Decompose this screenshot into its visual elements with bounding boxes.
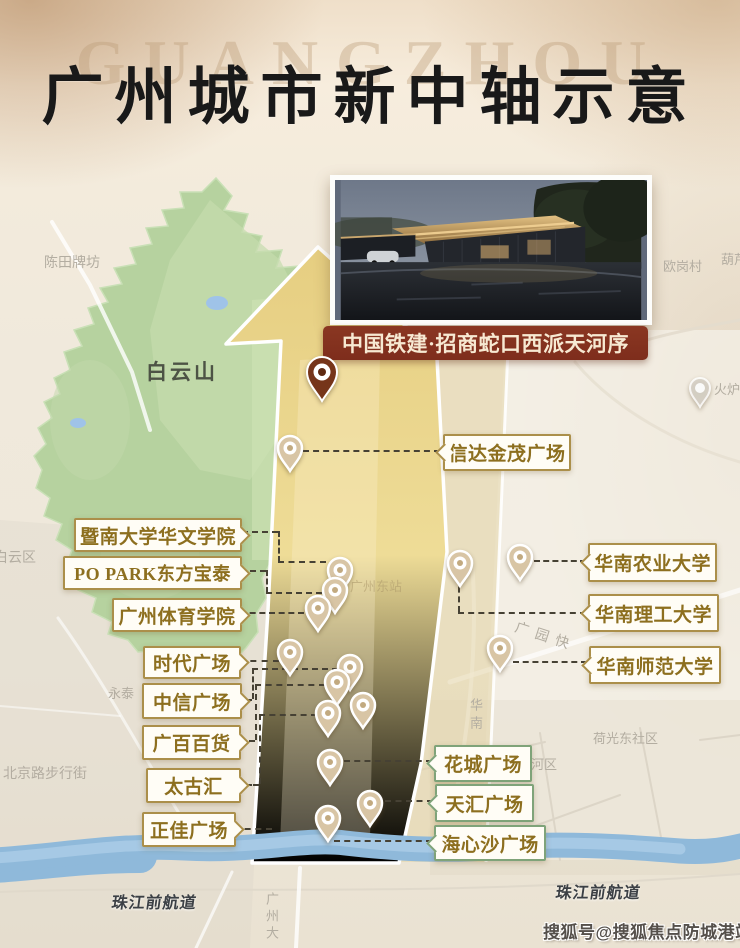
map-pin-tan [315,748,345,793]
area-label: 白云区 [0,547,36,567]
connector-segment [385,800,433,802]
sohu-watermark: 搜狐号@搜狐焦点防城港站 [543,918,740,943]
callout-notch [231,776,249,794]
map-pin-tan [313,699,343,744]
map-callout: 中信广场 [142,683,242,719]
callout-notch [226,820,244,838]
map-callout: 广州体育学院 [112,598,242,632]
connector-segment [259,714,261,784]
callout-text: 信达金茂广场 [448,439,565,466]
map-callout: 海心沙广场 [434,825,546,861]
connector-segment [278,561,326,563]
callout-text: 花城广场 [444,750,522,777]
map-callout: 时代广场 [143,646,241,679]
project-location-pin [303,354,341,409]
map-pin-tan [348,691,378,736]
map-callout: 天汇广场 [435,784,534,822]
project-photo-illustration [335,180,647,320]
callout-text: 广百百货 [152,729,230,756]
connector-segment [266,570,268,593]
connector-segment [278,531,280,562]
page-title: 广州城市新中轴示意 [0,46,740,136]
callout-text: PO PARK东方宝泰 [74,560,231,586]
connector-segment [458,612,586,614]
map-pin-tan [505,543,535,588]
area-label: 葫芦 [721,249,740,268]
callout-text: 华南师范大学 [596,652,713,679]
map-pin-gray [688,377,712,414]
area-label: 陈田牌坊 [44,252,100,272]
callout-notch [232,692,250,710]
guangzhou-axis-map-poster: 陈田牌坊欧岗村葫芦白云山白云区永泰北京路步行街广州东站广园快华南荷光东社区河区火… [0,0,740,948]
area-label: 广州大 [262,892,281,943]
project-name-banner: 中国铁建·招商蛇口西派天河序 [323,326,648,360]
connector-segment [255,684,257,740]
connector-segment [303,450,440,452]
map-callout: 华南师范大学 [589,646,721,684]
connector-segment [259,714,317,716]
map-callout: 太古汇 [146,768,241,803]
map-pin-tan [313,804,343,849]
map-pin-tan [303,594,333,639]
map-callout: 广百百货 [142,725,241,760]
map-callout: 暨南大学华文学院 [74,518,242,552]
map-callout: 信达金茂广场 [443,434,571,471]
callout-notch [427,794,445,812]
map-pin-tan [275,434,305,479]
connector-segment [534,560,586,562]
river-name-label: 珠江前航道 [110,889,198,913]
area-label: 欧岗村 [663,256,702,275]
map-pin-tan [485,634,515,679]
callout-text: 华南理工大学 [595,600,712,627]
area-label: 荷光东社区 [593,728,658,747]
callout-notch [231,733,249,751]
project-photo [330,175,652,325]
area-label: 华南 [466,698,485,734]
river-name-label: 珠江前航道 [554,879,642,903]
area-label: 永泰 [108,683,134,702]
area-label: 白云山 [146,356,218,386]
connector-segment [344,760,432,762]
callout-text: 正佳广场 [150,816,228,843]
map-callout: 正佳广场 [142,812,236,847]
callout-text: 海心沙广场 [441,830,539,857]
connector-segment [334,840,432,842]
callout-text: 华南农业大学 [594,549,711,576]
area-label: 北京路步行街 [3,763,87,783]
map-pin-tan [445,549,475,594]
area-label: 广州东站 [350,576,402,595]
callout-text: 广州体育学院 [118,602,235,629]
map-callout: 华南农业大学 [588,543,717,582]
connector-segment [255,684,325,686]
connector-segment [252,668,254,699]
map-callout: PO PARK东方宝泰 [63,556,242,590]
callout-text: 暨南大学华文学院 [80,522,236,549]
callout-notch [231,653,249,671]
area-label: 火炉 [714,379,740,398]
callout-text: 太古汇 [164,772,223,799]
callout-notch [232,564,250,582]
map-callout: 华南理工大学 [588,594,719,632]
callout-text: 中信广场 [153,688,231,715]
callout-text: 时代广场 [153,649,231,676]
callout-text: 天汇广场 [445,790,523,817]
map-pin-tan [355,789,385,834]
connector-segment [513,661,587,663]
map-pin-tan [275,638,305,683]
map-callout: 花城广场 [434,745,532,782]
callout-notch [426,754,444,772]
area-label: 河区 [531,754,557,773]
